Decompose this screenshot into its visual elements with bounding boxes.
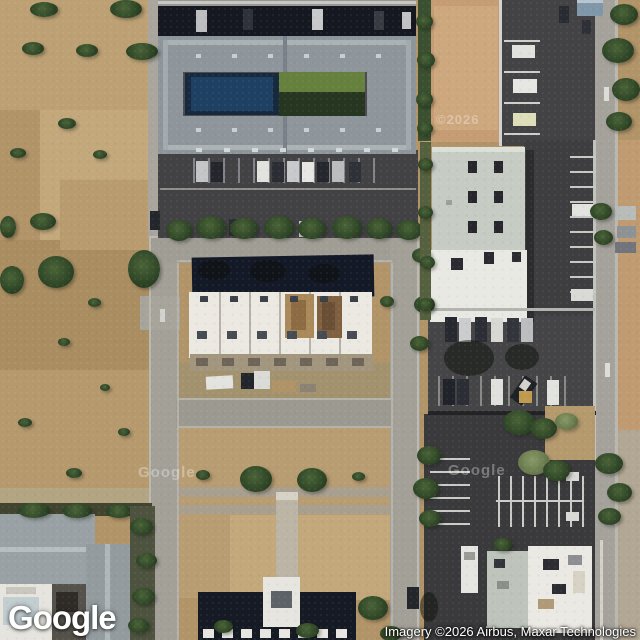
box-truck-cab [241, 373, 254, 389]
tree [106, 505, 132, 518]
parking-stall-lines [208, 158, 210, 183]
clutter-mark [196, 358, 208, 366]
roof-mark-row [260, 296, 268, 302]
parking-stripe [504, 71, 540, 73]
balcony-dot-row [364, 148, 370, 152]
roof-vent-row [304, 54, 309, 58]
parked-car [272, 162, 284, 182]
roof-vent-row [376, 54, 381, 58]
road-arrow [160, 309, 165, 322]
roof-vent-row [268, 54, 273, 58]
parking-stall-lines [498, 476, 500, 501]
tree-shadow [198, 260, 230, 280]
parked-car [513, 113, 536, 126]
deck-mark [6, 587, 36, 594]
curb-line [499, 0, 502, 146]
tree-shadow [505, 344, 539, 370]
roof-mark-row [197, 331, 207, 339]
parking-stripe [570, 186, 596, 188]
equipment-yellow [519, 391, 532, 403]
house-roof-ridge [0, 547, 95, 552]
tree [62, 504, 92, 518]
tree [358, 596, 388, 620]
parked-car [443, 379, 455, 405]
roof-vent [468, 221, 477, 233]
parking-stripe [504, 102, 540, 104]
parked-car [491, 379, 503, 405]
parking-stall-lines [510, 502, 512, 527]
roof-vent-row [376, 128, 381, 132]
shrub [66, 468, 82, 478]
shop-mark [497, 581, 509, 589]
tree [420, 256, 435, 269]
parked-car [287, 161, 299, 182]
road-loop-bottom [176, 398, 393, 428]
road-arrow [604, 87, 609, 101]
clutter-mark [326, 358, 338, 366]
tree [264, 216, 294, 239]
canopy-edge [577, 0, 603, 3]
roof-vent [494, 221, 503, 233]
shrub [196, 470, 210, 480]
tree [416, 14, 433, 29]
parked-car [374, 11, 384, 30]
clutter-mark [352, 358, 364, 366]
parked-car [512, 45, 535, 58]
tree [595, 453, 623, 474]
shrub [58, 338, 70, 346]
material-pile [300, 384, 316, 392]
palm-tree [612, 78, 640, 101]
shrub [30, 213, 56, 230]
roof-mark-row [317, 331, 327, 339]
parked-car [582, 20, 591, 34]
warehouse-units [336, 629, 347, 638]
parking-stripe [570, 201, 596, 203]
tree-shadow [308, 264, 340, 283]
roof-vent [468, 161, 477, 173]
construction-detail [322, 302, 335, 330]
parking-stall-lines [498, 502, 500, 527]
construction-detail [291, 300, 306, 330]
parking-stall-lines [373, 158, 375, 183]
parked-car [457, 379, 469, 405]
roof-vent [494, 161, 503, 173]
parking-mark-square [566, 512, 579, 521]
clutter-mark [248, 358, 260, 366]
parked-car [513, 79, 537, 93]
roof-mark-row [200, 296, 208, 302]
tree [416, 92, 433, 107]
balcony-dot-row [308, 148, 314, 152]
palm-tree [610, 4, 638, 25]
tree [410, 336, 429, 351]
roof-unit-tan [538, 599, 554, 609]
shrub [30, 2, 58, 17]
apartment-roof-ridge [163, 40, 168, 150]
tree [196, 216, 226, 239]
roof-vent-row [196, 54, 201, 58]
clutter-mark [274, 358, 286, 366]
box-truck-trailer [254, 371, 270, 389]
courtyard-lawn [279, 72, 365, 92]
tree [18, 503, 50, 518]
shrub [110, 0, 142, 18]
parking-stall-lines [534, 502, 536, 527]
parking-stall-lines [546, 502, 548, 527]
parked-car [257, 161, 269, 182]
roof-unit-light [573, 571, 585, 593]
parking-stall-lines [536, 376, 538, 406]
road-arrow [605, 363, 610, 377]
road-vertical-right-inner [390, 236, 420, 640]
balcony-dot-row [280, 148, 286, 152]
parked-car [547, 380, 559, 405]
townhouse-unit-gap [279, 292, 281, 358]
pickup-truck [206, 375, 234, 389]
tree [607, 483, 632, 502]
tree [543, 460, 570, 481]
shrub [18, 418, 32, 427]
roof-vent-row [268, 128, 273, 132]
tree [594, 230, 613, 245]
parking-stall-lines [223, 158, 225, 183]
office-roof-upper [432, 147, 525, 250]
townhouse-unit-gap [249, 292, 251, 358]
warehouse-units [241, 629, 252, 638]
parked-car [559, 6, 569, 23]
tree [214, 620, 233, 633]
shrub [118, 428, 130, 436]
parking-stall-lines [546, 476, 548, 501]
tree-shadow [444, 340, 494, 376]
roof-vent-row [232, 128, 237, 132]
roof-vent [494, 191, 503, 203]
parking-stall-lines [582, 476, 584, 501]
palm-tree [606, 112, 632, 131]
map-viewport: ©2026 Google Google Google Imagery ©2026… [0, 0, 640, 640]
balcony-dot-row [392, 148, 398, 152]
warehouse-units [260, 629, 271, 638]
apartment-roof-ridge [163, 40, 411, 45]
swimming-pool [191, 77, 273, 111]
parking-stall-lines [534, 476, 536, 501]
tree [418, 206, 433, 219]
parking-stall-lines [522, 476, 524, 501]
balcony-dot-row [252, 148, 258, 152]
parked-car [475, 317, 487, 342]
tree [366, 218, 392, 239]
parking-stripe [570, 276, 596, 278]
material-pile [272, 381, 296, 392]
tree [240, 466, 272, 492]
courtyard-lawn-shadow [279, 92, 365, 116]
shrub [76, 44, 98, 57]
tree [128, 250, 160, 288]
parked-car [332, 161, 344, 182]
tree [132, 588, 155, 605]
shrub [58, 118, 76, 129]
clutter-mark [300, 358, 312, 366]
parking-stall-lines [522, 502, 524, 527]
parking-stripe [504, 133, 540, 135]
tree [590, 203, 612, 220]
dirt-lot-topright-inner [434, 6, 498, 130]
tree [136, 553, 157, 568]
tree [380, 296, 394, 307]
tree [555, 413, 578, 430]
shrub [126, 43, 158, 60]
parking-stripe [570, 171, 596, 173]
parking-stall-lines [253, 158, 255, 183]
shed [615, 206, 636, 220]
shrub [352, 472, 365, 481]
curb-line [177, 263, 179, 640]
parked-car [317, 162, 329, 182]
roof-mark-row [347, 331, 357, 339]
roof-mark-row [230, 296, 238, 302]
shrub [100, 384, 110, 391]
parked-car [211, 162, 223, 182]
parking-stall-lines [582, 502, 584, 527]
tree [166, 220, 192, 241]
roof-vent-row [304, 128, 309, 132]
shrub [10, 148, 26, 158]
apartment-roof-gap [283, 36, 287, 76]
curb-line [391, 263, 393, 640]
car-on-road [150, 211, 160, 230]
curb-line [158, 1, 416, 4]
roof-mark-row [320, 296, 328, 302]
townhouse-unit-gap [219, 292, 221, 358]
tree [38, 256, 74, 288]
roof-vent [468, 191, 477, 203]
roof-vent-row [340, 54, 345, 58]
tree [296, 623, 319, 638]
tree-shadow [250, 260, 286, 282]
tree [417, 122, 433, 135]
roof-vent [451, 258, 463, 270]
shrub [88, 298, 101, 307]
concrete-strip-cap [276, 492, 298, 500]
roof-mark [446, 200, 452, 205]
parking-stall-lines [510, 476, 512, 501]
parked-car [196, 10, 207, 32]
parked-car [491, 318, 503, 342]
parked-car [507, 318, 519, 342]
desert-patch [60, 180, 150, 250]
tree [493, 538, 512, 551]
parking-stall-lines [438, 376, 440, 406]
roof-vent-row [340, 128, 345, 132]
parking-stripe [570, 231, 596, 233]
roof-vent-row [196, 128, 201, 132]
roof-mark-row [227, 331, 237, 339]
concrete-strip [276, 497, 298, 583]
curb-line [160, 188, 416, 190]
parking-stripe [430, 471, 470, 473]
rv-marks [464, 552, 475, 560]
tree [130, 518, 153, 535]
parked-car [349, 162, 361, 182]
tree [332, 216, 362, 239]
tree [530, 418, 557, 439]
tree [396, 220, 422, 240]
shed [615, 242, 636, 253]
roof-unit [552, 584, 566, 594]
parking-stall-lines [193, 158, 195, 183]
roof-unit [568, 555, 582, 565]
parking-stall-lines [508, 376, 510, 406]
tree [417, 52, 435, 68]
roof-vent [484, 252, 494, 264]
parked-car [571, 289, 593, 301]
roof-unit [543, 559, 559, 570]
parked-car [402, 12, 411, 29]
parked-car [521, 318, 533, 342]
apartment-roof-ridge [406, 40, 411, 150]
car-shadow [420, 592, 438, 622]
map-attribution: Imagery ©2026 Airbus, Maxar Technologies [385, 624, 636, 639]
palm-tree [602, 38, 634, 63]
parked-car [243, 9, 253, 30]
curb-line [178, 426, 393, 428]
roof-vent [512, 252, 521, 262]
palm-tree [413, 478, 439, 499]
parked-car [459, 318, 471, 342]
roof-mark-row [350, 296, 358, 302]
palm-tree [419, 510, 441, 527]
parking-stall-lines [238, 158, 240, 183]
shrub [93, 150, 107, 159]
tree [418, 158, 433, 171]
google-logo[interactable]: Google [8, 599, 116, 637]
gable-mark [271, 591, 292, 608]
warehouse-units [203, 629, 214, 638]
parked-car [445, 317, 457, 342]
parking-stripe [570, 156, 596, 158]
parked-car [196, 161, 208, 182]
shrub [22, 42, 44, 55]
roof-vent-row [232, 54, 237, 58]
tree [418, 298, 433, 311]
desert-patch [0, 240, 150, 370]
balcony-dot-row [336, 148, 342, 152]
roof-mark-row [290, 296, 298, 302]
car-on-road [407, 587, 419, 609]
tree [0, 266, 24, 294]
tree [128, 618, 149, 633]
balcony-dot-row [224, 148, 230, 152]
clutter-mark [222, 358, 234, 366]
roof-mark-row [257, 331, 267, 339]
parking-stall-lines [564, 376, 566, 406]
tree [297, 468, 327, 492]
tree [598, 508, 621, 525]
parking-stall-lines [558, 502, 560, 527]
shed [617, 226, 636, 238]
building-shadow [526, 150, 534, 322]
office-roof-upper-edge [432, 147, 525, 152]
parking-stripe [570, 246, 596, 248]
roof-mark-row [287, 331, 297, 339]
dirt-center-light [230, 515, 400, 600]
warehouse-units [279, 629, 290, 638]
palm-tree [417, 446, 441, 465]
tree [230, 218, 258, 239]
satellite-map-canvas[interactable] [0, 0, 640, 640]
shrub [0, 216, 16, 238]
parked-car [312, 9, 323, 30]
curb-line [178, 398, 393, 400]
tree [298, 218, 326, 239]
curb-line [428, 308, 595, 311]
shop-mark [494, 559, 505, 568]
parked-car [302, 162, 314, 182]
balcony-dot-row [196, 148, 202, 152]
parking-stripe [504, 40, 540, 42]
parking-stripe [570, 261, 596, 263]
parking-stripe [430, 497, 470, 499]
parking-stall-lines [480, 376, 482, 406]
